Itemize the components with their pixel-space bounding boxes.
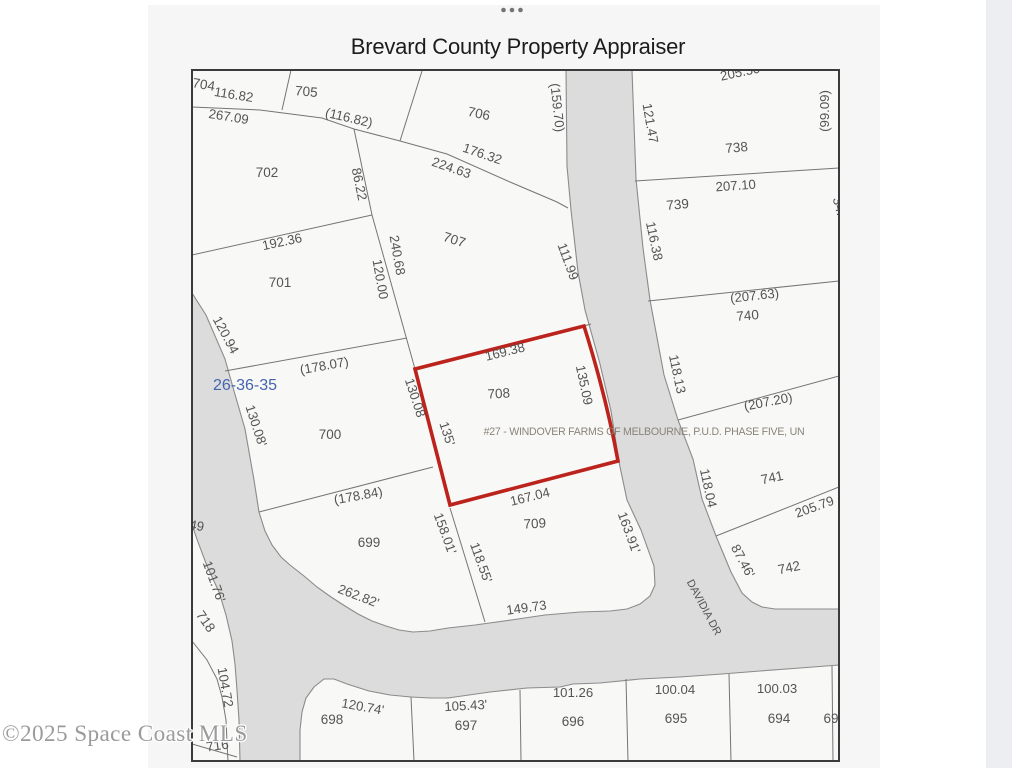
svg-text:697: 697 [455, 718, 478, 733]
svg-text:695: 695 [665, 711, 688, 726]
svg-text:694: 694 [768, 711, 791, 726]
svg-text:105.43': 105.43' [444, 697, 488, 714]
svg-text:699: 699 [358, 535, 381, 550]
svg-text:©2025 Space Coast MLS: ©2025 Space Coast MLS [2, 721, 248, 747]
svg-text:702: 702 [256, 165, 279, 180]
svg-text:709: 709 [523, 515, 546, 531]
svg-text:100.04: 100.04 [655, 682, 695, 697]
svg-text:698: 698 [321, 712, 344, 727]
svg-text:100.03: 100.03 [757, 681, 797, 696]
svg-text:#27 - WINDOVER FARMS OF MELBOU: #27 - WINDOVER FARMS OF MELBOURNE, P.U.D… [484, 426, 805, 438]
svg-text:701: 701 [269, 275, 292, 290]
svg-text:708: 708 [487, 385, 510, 401]
svg-text:740: 740 [736, 307, 760, 324]
svg-text:Brevard County Property Apprai: Brevard County Property Appraiser [351, 34, 686, 59]
svg-text:700: 700 [319, 427, 342, 442]
svg-text:207.10: 207.10 [715, 177, 756, 195]
svg-text:696: 696 [562, 714, 585, 729]
svg-text:705: 705 [295, 83, 319, 100]
svg-text:739: 739 [666, 196, 690, 213]
svg-text:26-36-35: 26-36-35 [213, 377, 277, 394]
svg-text:69: 69 [823, 711, 838, 726]
svg-text:738: 738 [725, 139, 749, 156]
svg-text:(99.09): (99.09) [817, 90, 832, 132]
svg-text:101.26: 101.26 [553, 685, 593, 700]
